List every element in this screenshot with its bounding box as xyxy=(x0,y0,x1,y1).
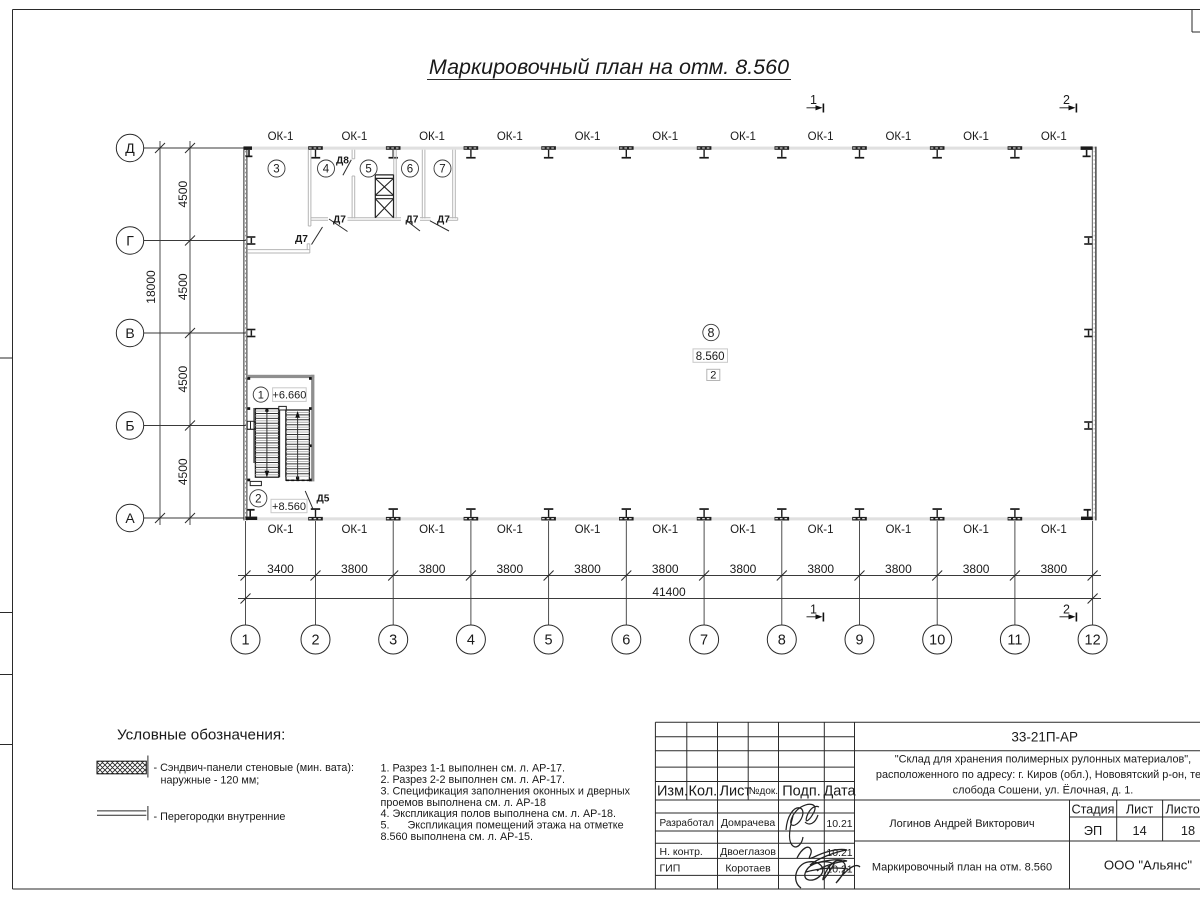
svg-text:проемов выполнена см. л. АР-18: проемов выполнена см. л. АР-18 xyxy=(381,797,547,809)
svg-text:ОК-1: ОК-1 xyxy=(963,131,989,143)
svg-text:1: 1 xyxy=(258,389,264,401)
svg-text:ОК-1: ОК-1 xyxy=(575,131,601,143)
svg-text:Н. контр.: Н. контр. xyxy=(660,846,703,858)
svg-text:4500: 4500 xyxy=(176,273,190,300)
svg-text:3800: 3800 xyxy=(652,562,679,576)
svg-text:ОК-1: ОК-1 xyxy=(963,524,989,536)
svg-text:В: В xyxy=(125,325,134,341)
svg-text:3800: 3800 xyxy=(496,562,523,576)
svg-text:наружные - 120 мм;: наружные - 120 мм; xyxy=(161,774,260,786)
svg-text:№док.: №док. xyxy=(749,786,778,797)
svg-text:5: 5 xyxy=(365,164,371,176)
svg-text:Лист: Лист xyxy=(1126,803,1154,817)
svg-text:4500: 4500 xyxy=(176,458,190,485)
svg-text:2: 2 xyxy=(311,633,319,649)
svg-text:8.560 выполнена см. л. АР-15.: 8.560 выполнена см. л. АР-15. xyxy=(381,831,534,843)
svg-text:Стадия: Стадия xyxy=(1072,803,1115,817)
svg-text:ОК-1: ОК-1 xyxy=(808,131,834,143)
svg-text:Кол.: Кол. xyxy=(689,784,718,800)
svg-text:2: 2 xyxy=(1063,93,1070,107)
svg-text:4: 4 xyxy=(323,164,330,176)
svg-text:ООО "Альянс": ООО "Альянс" xyxy=(1104,858,1192,873)
svg-text:ОК-1: ОК-1 xyxy=(268,131,294,143)
svg-text:41400: 41400 xyxy=(652,585,686,599)
svg-text:2: 2 xyxy=(255,494,261,506)
svg-text:1: 1 xyxy=(241,633,249,649)
svg-text:4. Экспликация полов выполнена: 4. Экспликация полов выполнена см. л. АР… xyxy=(381,808,616,820)
svg-text:ОК-1: ОК-1 xyxy=(730,131,756,143)
svg-text:ОК-1: ОК-1 xyxy=(497,131,523,143)
svg-text:10.21: 10.21 xyxy=(826,847,852,859)
svg-text:ОК-1: ОК-1 xyxy=(497,524,523,536)
svg-text:ОК-1: ОК-1 xyxy=(341,131,367,143)
svg-text:- Сэндвич-панели стеновые (мин: - Сэндвич-панели стеновые (мин. вата): xyxy=(154,762,354,774)
svg-text:Б: Б xyxy=(125,418,134,434)
svg-text:4: 4 xyxy=(467,633,475,649)
svg-text:ОК-1: ОК-1 xyxy=(419,524,445,536)
svg-text:слобода Сошени, ул. Ёлочная, д: слобода Сошени, ул. Ёлочная, д. 1. xyxy=(953,784,1134,796)
svg-text:ОК-1: ОК-1 xyxy=(652,524,678,536)
svg-text:3800: 3800 xyxy=(885,562,912,576)
svg-text:3: 3 xyxy=(273,164,279,176)
svg-text:Д8: Д8 xyxy=(336,156,349,167)
svg-text:Д7: Д7 xyxy=(437,215,450,226)
svg-text:+8.560: +8.560 xyxy=(272,501,306,513)
svg-text:7: 7 xyxy=(700,633,708,649)
svg-text:Разработал: Разработал xyxy=(660,817,715,829)
svg-text:8.560: 8.560 xyxy=(696,351,725,363)
svg-text:5. Экспликация помещений: 5. Экспликация помещений этажа на отметк… xyxy=(381,820,624,832)
svg-text:Д: Д xyxy=(125,140,135,156)
svg-text:18: 18 xyxy=(1181,823,1195,838)
svg-text:3800: 3800 xyxy=(730,562,757,576)
svg-text:ОК-1: ОК-1 xyxy=(1041,131,1067,143)
svg-text:Логинов Андрей Викторович: Логинов Андрей Викторович xyxy=(889,818,1034,830)
svg-text:2: 2 xyxy=(710,370,716,382)
svg-text:ОК-1: ОК-1 xyxy=(885,524,911,536)
svg-text:6: 6 xyxy=(622,633,630,649)
svg-text:10.21: 10.21 xyxy=(826,818,852,830)
svg-text:1. Разрез 1-1 выполнен см. л.: 1. Разрез 1-1 выполнен см. л. АР-17. xyxy=(381,763,565,775)
svg-text:А: А xyxy=(125,510,135,526)
svg-text:18000: 18000 xyxy=(144,270,158,304)
svg-text:ОК-1: ОК-1 xyxy=(1041,524,1067,536)
svg-text:ГИП: ГИП xyxy=(660,863,681,875)
svg-text:3: 3 xyxy=(389,633,397,649)
svg-text:ОК-1: ОК-1 xyxy=(730,524,756,536)
svg-text:11: 11 xyxy=(1007,633,1022,649)
svg-text:3800: 3800 xyxy=(574,562,601,576)
svg-text:14: 14 xyxy=(1132,823,1146,838)
svg-text:Лист: Лист xyxy=(720,784,752,800)
svg-text:Листов: Листов xyxy=(1166,803,1200,817)
svg-text:10: 10 xyxy=(929,633,945,649)
svg-text:Условные обозначения:: Условные обозначения: xyxy=(117,727,285,744)
svg-text:Маркировочный план на отм. 8.5: Маркировочный план на отм. 8.560 xyxy=(872,862,1052,874)
svg-text:Домрачева: Домрачева xyxy=(721,817,776,829)
svg-text:3800: 3800 xyxy=(341,562,368,576)
svg-text:Д5: Д5 xyxy=(317,494,330,505)
svg-text:9: 9 xyxy=(855,633,863,649)
svg-text:"Склад для хранения полимерных: "Склад для хранения полимерных рулонных … xyxy=(895,754,1191,766)
svg-text:5: 5 xyxy=(545,633,553,649)
svg-text:ОК-1: ОК-1 xyxy=(341,524,367,536)
svg-text:ОК-1: ОК-1 xyxy=(808,524,834,536)
svg-text:8: 8 xyxy=(708,326,715,340)
svg-text:4500: 4500 xyxy=(176,366,190,393)
svg-text:Д7: Д7 xyxy=(295,234,308,245)
svg-text:ОК-1: ОК-1 xyxy=(652,131,678,143)
svg-text:ОК-1: ОК-1 xyxy=(268,524,294,536)
svg-text:ЭП: ЭП xyxy=(1084,823,1102,838)
svg-text:+6.660: +6.660 xyxy=(272,390,306,402)
svg-text:3800: 3800 xyxy=(1040,562,1067,576)
svg-text:2. Разрез 2-2 выполнен см. л.: 2. Разрез 2-2 выполнен см. л. АР-17. xyxy=(381,774,565,786)
svg-text:3800: 3800 xyxy=(419,562,446,576)
svg-text:Дата: Дата xyxy=(823,784,856,800)
svg-text:расположенного по адресу: г. К: расположенного по адресу: г. Киров (обл.… xyxy=(876,769,1200,781)
svg-text:8: 8 xyxy=(778,633,786,649)
svg-text:ОК-1: ОК-1 xyxy=(575,524,601,536)
svg-text:Д7: Д7 xyxy=(406,215,419,226)
svg-text:7: 7 xyxy=(439,164,445,176)
svg-text:1: 1 xyxy=(810,93,817,107)
svg-text:ОК-1: ОК-1 xyxy=(885,131,911,143)
svg-text:4500: 4500 xyxy=(176,181,190,208)
svg-text:Д7: Д7 xyxy=(333,215,346,226)
svg-text:3800: 3800 xyxy=(807,562,834,576)
svg-text:Двоеглазов: Двоеглазов xyxy=(720,846,776,858)
svg-text:Маркировочный план на отм. 8.5: Маркировочный план на отм. 8.560 xyxy=(429,55,789,79)
svg-text:3400: 3400 xyxy=(267,562,294,576)
svg-text:Г: Г xyxy=(126,233,134,249)
svg-text:ОК-1: ОК-1 xyxy=(419,131,445,143)
svg-text:Изм.: Изм. xyxy=(657,784,688,800)
svg-text:3. Спецификация заполнения око: 3. Спецификация заполнения оконных и две… xyxy=(381,785,631,797)
svg-text:- Перегородки внутренние: - Перегородки внутренние xyxy=(154,811,286,823)
svg-text:3800: 3800 xyxy=(963,562,990,576)
svg-text:6: 6 xyxy=(407,164,413,176)
svg-text:33-21П-АР: 33-21П-АР xyxy=(1011,730,1078,745)
svg-text:Коротаев: Коротаев xyxy=(725,863,771,875)
svg-text:Подп.: Подп. xyxy=(782,784,821,800)
svg-text:12: 12 xyxy=(1085,633,1101,649)
